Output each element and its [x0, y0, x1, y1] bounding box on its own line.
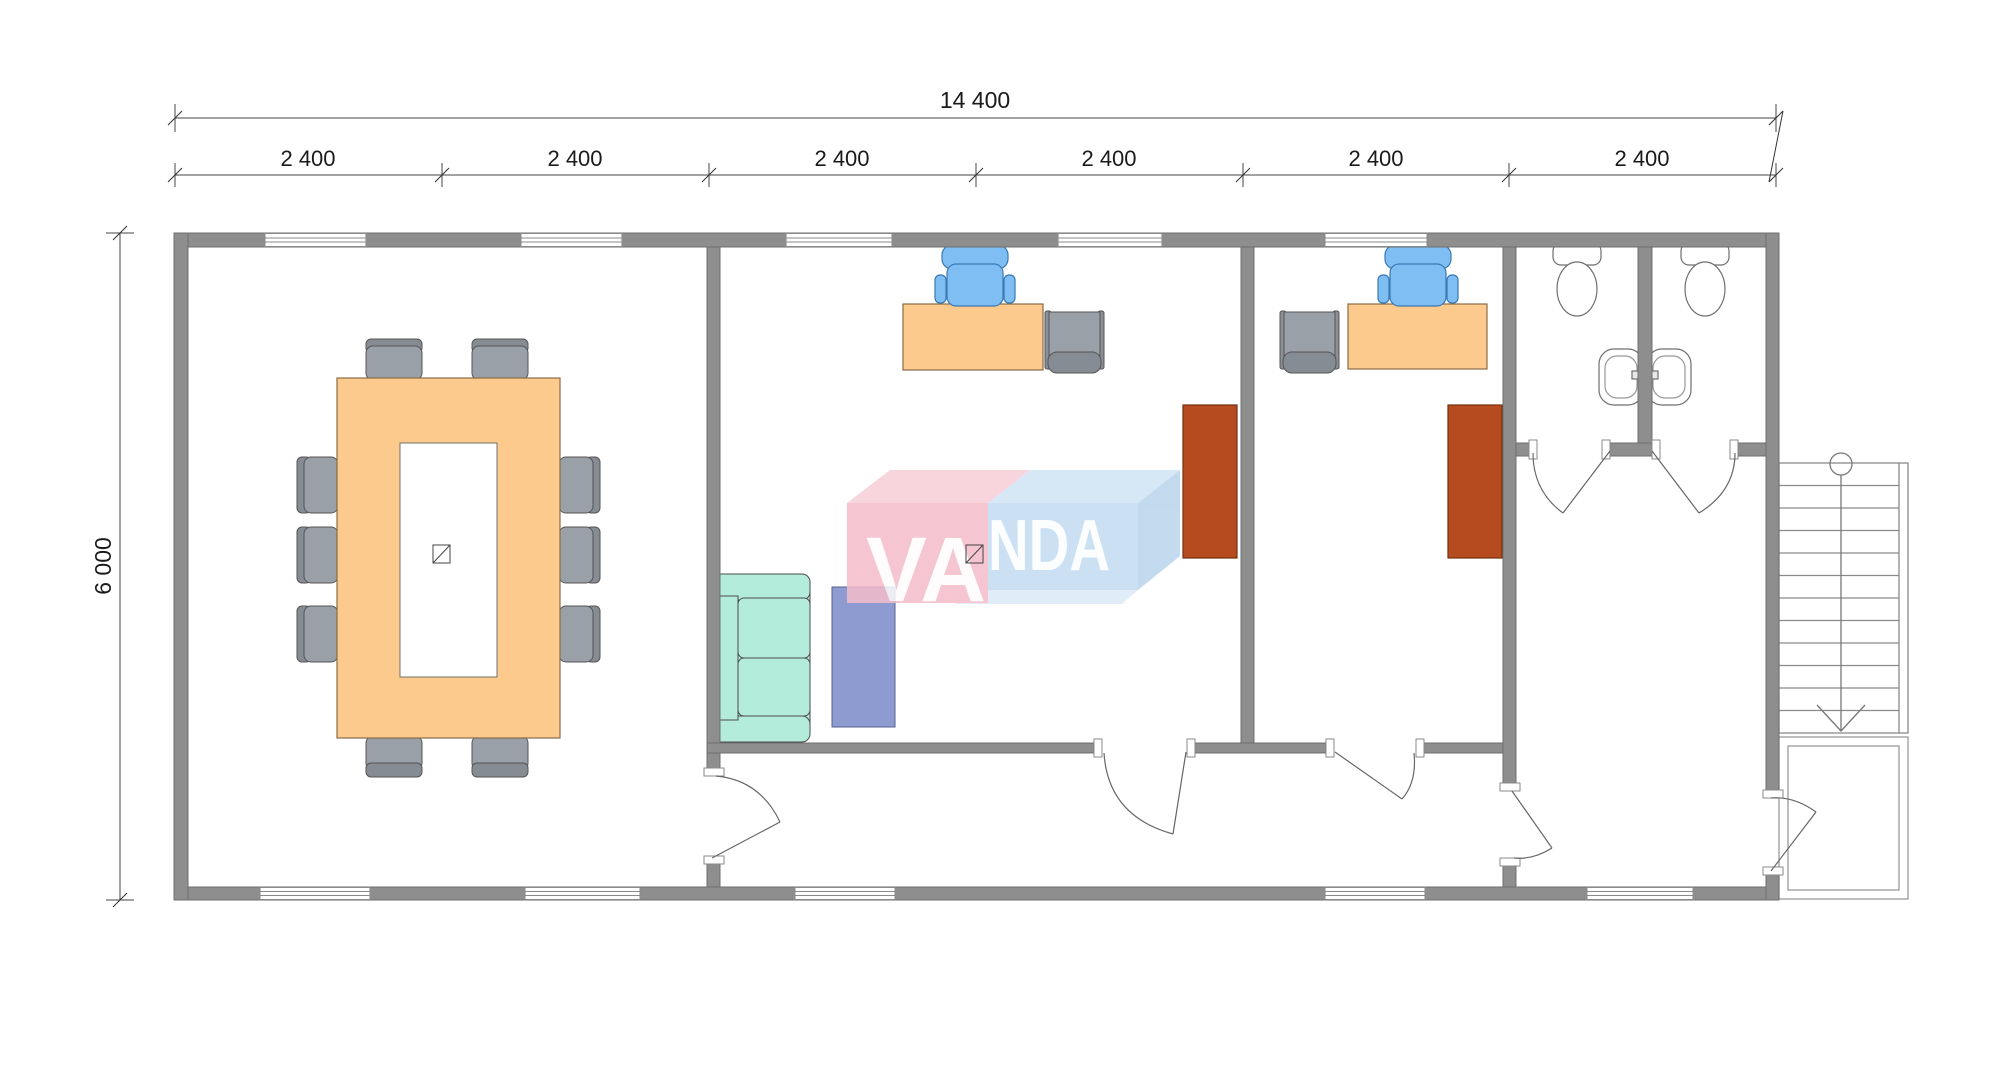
door-jamb — [1500, 858, 1520, 866]
desk — [1348, 304, 1487, 369]
wall-office-divider — [1241, 247, 1254, 753]
segment-label-6: 2 400 — [1614, 146, 1669, 171]
door-jamb — [1326, 739, 1334, 757]
dimension-segments-line — [168, 111, 1783, 187]
office-chair-blue — [1378, 245, 1458, 306]
wall-corridor-3 — [1416, 743, 1503, 753]
wall-corridor-1 — [707, 743, 1102, 753]
window — [1325, 234, 1427, 247]
height-label: 6 000 — [90, 537, 116, 595]
stair-landing — [1779, 737, 1908, 899]
window — [786, 234, 892, 247]
office-2 — [1280, 245, 1502, 558]
door-jamb — [1416, 739, 1424, 757]
segment-label-2: 2 400 — [547, 146, 602, 171]
chair — [559, 457, 600, 513]
door-jamb — [1730, 440, 1738, 459]
wall-bathroom-front-3 — [1738, 443, 1766, 456]
wall-top — [174, 233, 1779, 247]
wall-right-lower — [1766, 875, 1779, 900]
wall-bathroom-front-2 — [1610, 443, 1652, 456]
wall-hall-lower — [1503, 865, 1516, 887]
wall-corridor-2 — [1187, 743, 1334, 753]
chair — [472, 339, 528, 380]
chair — [366, 339, 422, 380]
chair — [472, 736, 528, 777]
segment-label-3: 2 400 — [814, 146, 869, 171]
cabinet — [1183, 405, 1237, 558]
floor-plan-canvas: 14 400 2 400 2 400 2 400 2 400 2 400 2 4… — [0, 0, 2000, 1076]
wall-conference-lower — [707, 864, 720, 887]
window — [1587, 888, 1693, 900]
window — [1325, 888, 1425, 900]
segment-label-1: 2 400 — [280, 146, 335, 171]
door-hall — [1512, 791, 1552, 858]
segment-label-5: 2 400 — [1348, 146, 1403, 171]
door-office-2 — [1335, 752, 1415, 799]
staircase — [1779, 453, 1908, 733]
wall-hall-upper — [1503, 247, 1516, 783]
door-jamb — [1094, 739, 1102, 757]
door-jamb — [1500, 783, 1520, 791]
wall-right-upper — [1766, 233, 1779, 790]
guest-chair-gray — [1045, 311, 1104, 373]
wall-bathroom-divider — [1638, 247, 1652, 453]
segment-label-4: 2 400 — [1081, 146, 1136, 171]
chair — [559, 527, 600, 583]
door-wc-1 — [1533, 451, 1610, 513]
window — [521, 234, 622, 247]
chair — [297, 457, 338, 513]
door-jamb — [1763, 790, 1783, 798]
cabinet — [1448, 405, 1502, 558]
door-conference — [712, 776, 780, 858]
total-width-label: 14 400 — [940, 87, 1010, 113]
window — [525, 888, 640, 900]
wall-conference-upper — [707, 247, 720, 768]
vanda-watermark: VA NDA — [847, 470, 1180, 621]
window — [1058, 234, 1162, 247]
watermark-text-nda: NDA — [988, 506, 1110, 586]
door-jamb — [704, 768, 724, 776]
wall-left — [174, 233, 188, 900]
window — [260, 888, 370, 900]
floor-drain-symbol — [433, 545, 450, 563]
guest-chair-gray — [1280, 311, 1339, 373]
wall-bottom — [174, 887, 1779, 900]
floor-plan-drawing: 14 400 2 400 2 400 2 400 2 400 2 400 2 4… — [0, 0, 2000, 1076]
landing-outer — [1779, 737, 1908, 899]
chair — [366, 736, 422, 777]
desk — [903, 304, 1043, 370]
window — [265, 234, 366, 247]
sofa — [712, 574, 810, 742]
office-chair-blue — [935, 245, 1015, 306]
chair — [297, 527, 338, 583]
chair — [297, 606, 338, 662]
window — [795, 888, 895, 900]
door-wc-2 — [1652, 451, 1735, 513]
door-jamb — [1187, 739, 1195, 757]
chair — [559, 606, 600, 662]
watermark-text-va: VA — [866, 519, 986, 621]
door-office-1 — [1104, 752, 1186, 834]
